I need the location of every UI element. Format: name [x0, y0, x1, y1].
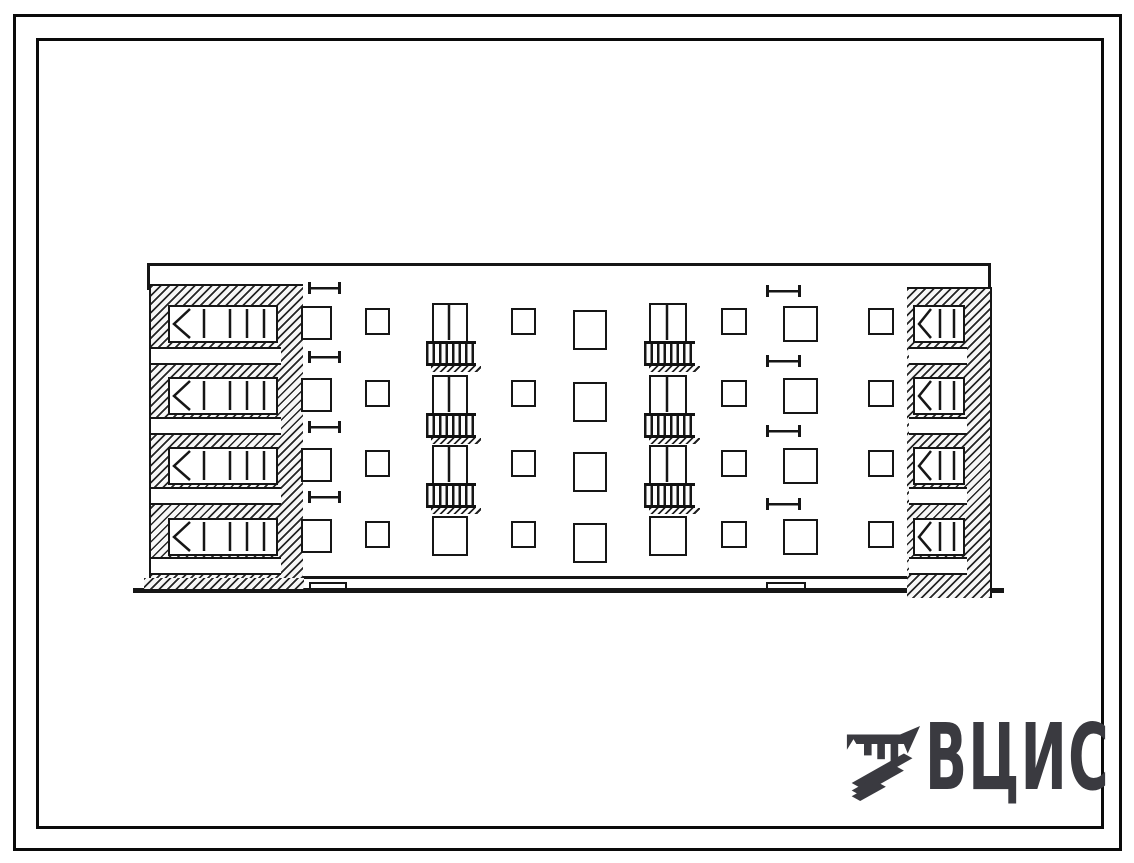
landing-mark	[308, 282, 341, 294]
balcony-window	[432, 445, 468, 485]
loggia-window	[913, 518, 965, 556]
interfloor-band	[909, 557, 967, 575]
small-window	[868, 380, 894, 407]
balcony-railing	[426, 483, 476, 508]
stair-window	[783, 519, 818, 555]
balcony-railing	[426, 413, 476, 438]
stair-window	[783, 378, 818, 414]
small-window	[511, 380, 536, 407]
balcony-railing	[644, 341, 695, 366]
landing-mark	[308, 421, 341, 433]
entrance-step	[766, 582, 806, 590]
railing-hatch-shadow	[431, 366, 481, 372]
small-window	[868, 521, 894, 548]
stair-window	[301, 378, 332, 412]
railing-hatch-shadow	[431, 438, 481, 444]
small-window	[511, 308, 536, 335]
plinth-line	[303, 576, 908, 579]
roof-line	[147, 263, 991, 266]
small-window	[721, 308, 747, 335]
balcony-window	[432, 516, 468, 556]
balcony-railing	[644, 413, 695, 438]
loggia-window	[913, 447, 965, 485]
stair-window	[301, 448, 332, 482]
balcony-window	[432, 303, 468, 343]
balcony-window	[649, 516, 687, 556]
interfloor-band	[909, 417, 967, 435]
small-window	[868, 450, 894, 477]
scanned-drawing-sheet: { "logo": { "text": "ВЦИС", "color": "#3…	[0, 0, 1134, 863]
interfloor-band	[151, 557, 281, 575]
railing-hatch-shadow	[649, 508, 700, 514]
small-window	[511, 521, 536, 548]
interfloor-band	[909, 487, 967, 505]
small-window	[868, 308, 894, 335]
loggia-window	[913, 305, 965, 343]
loggia-window	[168, 377, 278, 415]
interfloor-band	[151, 347, 281, 365]
small-window	[721, 380, 747, 407]
railing-hatch-shadow	[431, 508, 481, 514]
large-window	[573, 452, 607, 492]
large-window	[573, 382, 607, 422]
small-window	[365, 521, 390, 548]
loggia-window	[913, 377, 965, 415]
landing-mark	[308, 491, 341, 503]
small-window	[365, 308, 390, 335]
landing-mark	[308, 351, 341, 363]
loggia-window	[168, 305, 278, 343]
landing-mark	[766, 285, 801, 297]
railing-hatch-shadow	[649, 438, 700, 444]
landing-mark	[766, 498, 801, 510]
small-window	[365, 450, 390, 477]
vcis-emblem-icon	[845, 723, 921, 803]
interfloor-band	[151, 487, 281, 505]
interfloor-band	[151, 417, 281, 435]
landing-mark	[766, 425, 801, 437]
balcony-window	[649, 445, 687, 485]
stair-window	[301, 306, 332, 340]
small-window	[511, 450, 536, 477]
large-window	[573, 310, 607, 350]
small-window	[365, 380, 390, 407]
balcony-window	[649, 375, 687, 415]
balcony-window	[649, 303, 687, 343]
stair-window	[301, 519, 332, 553]
interfloor-band	[909, 347, 967, 365]
entrance-step	[309, 582, 347, 590]
vcis-logo: ВЦИС	[845, 708, 1085, 808]
stair-window	[783, 306, 818, 342]
small-window	[721, 521, 747, 548]
balcony-railing	[644, 483, 695, 508]
loggia-window	[168, 447, 278, 485]
stair-window	[783, 448, 818, 484]
vcis-logo-text: ВЦИС	[925, 712, 1110, 804]
balcony-railing	[426, 341, 476, 366]
balcony-window	[432, 375, 468, 415]
landing-mark	[766, 355, 801, 367]
railing-hatch-shadow	[649, 366, 700, 372]
loggia-window	[168, 518, 278, 556]
plinth-hatch	[144, 578, 304, 591]
small-window	[721, 450, 747, 477]
large-window	[573, 523, 607, 563]
